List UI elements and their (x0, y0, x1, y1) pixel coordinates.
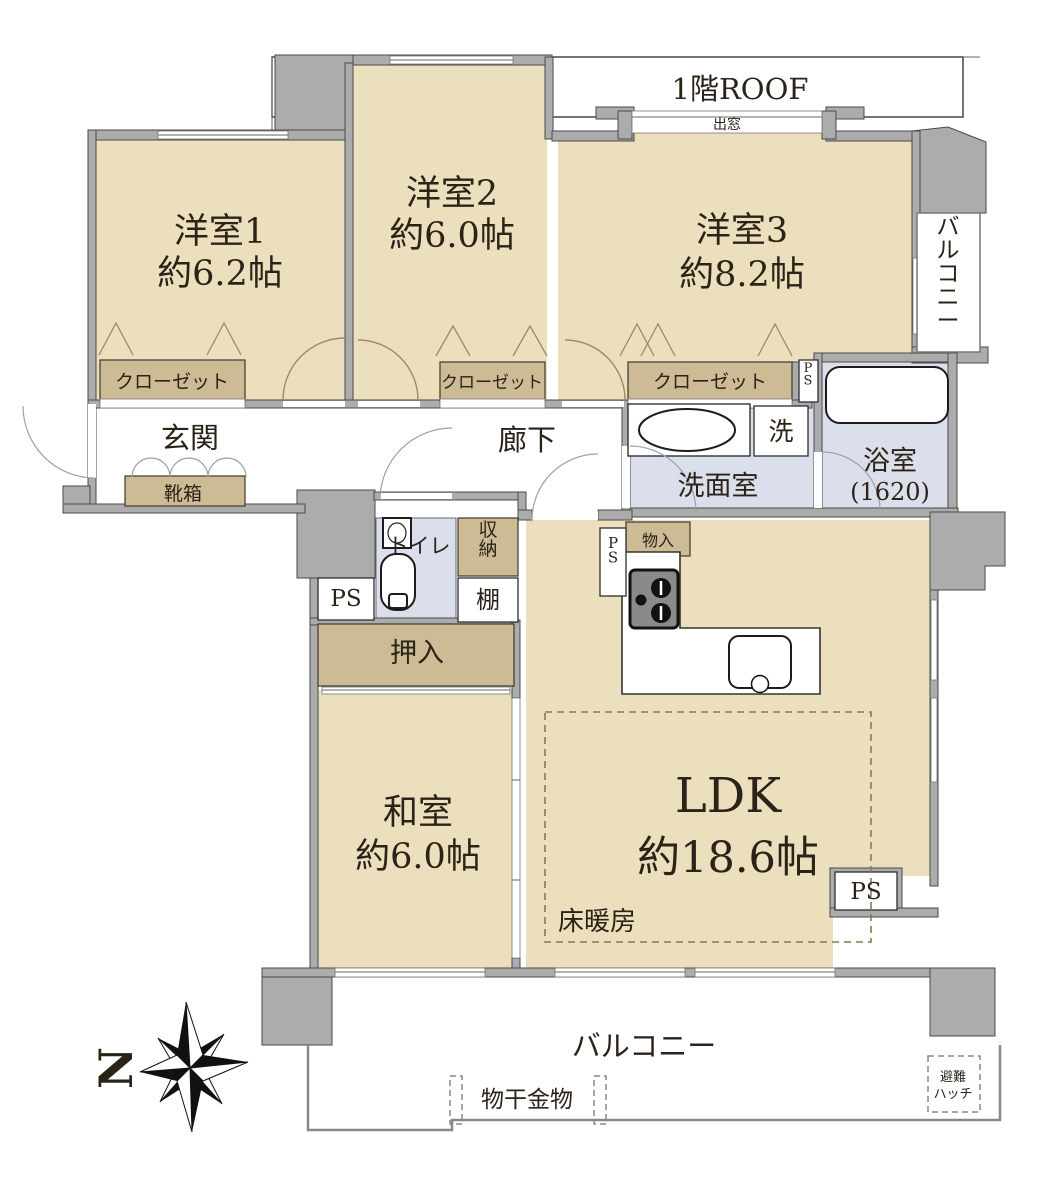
faucet (752, 676, 769, 693)
floor-heating-label: 床暖房 (558, 907, 636, 937)
bedroom3-name: 洋室3 (696, 211, 788, 251)
entrance-label: 玄関 (161, 421, 219, 455)
shoe-cabinet-door (170, 458, 208, 477)
balcony-bottom-label: バルコニー (572, 1029, 716, 1063)
toilet-label: トイレ (388, 534, 451, 558)
cubby-label: 物入 (642, 531, 674, 550)
entrance-opening (88, 404, 96, 478)
shelf-label: 棚 (476, 586, 500, 614)
shoe-cabinet-door (208, 458, 246, 477)
closet3-label: クローゼット (653, 371, 767, 393)
bathtub (826, 367, 948, 423)
laundry-fitting-mark (594, 1076, 606, 1124)
toilet-door (380, 428, 452, 500)
ps2-label: PS (330, 586, 361, 612)
bedroom2-name: 洋室2 (406, 174, 498, 214)
sliding-door (512, 698, 520, 958)
washer-label: 洗 (768, 417, 793, 446)
laundry-fitting-label: 物干金物 (481, 1087, 573, 1113)
bedroom1-name: 洋室1 (174, 212, 266, 252)
roof-label: 1階ROOF (672, 72, 809, 106)
japanese-room-size: 約6.0帖 (355, 837, 481, 877)
compass: N (89, 1002, 248, 1132)
north-label: N (89, 1047, 143, 1089)
bathroom-label: 浴室 (863, 446, 917, 477)
entrance-door (23, 406, 95, 478)
futon-closet-label: 押入 (390, 638, 444, 669)
window (931, 600, 937, 680)
washroom-label: 洗面室 (678, 471, 759, 502)
balcony-pillar-left (262, 977, 332, 1045)
storage-label: 収納 (478, 519, 497, 560)
bay-window-label: 出窓 (713, 116, 741, 133)
ldk-size: 約18.6帖 (637, 833, 819, 883)
hallway-label: 廊下 (498, 423, 556, 457)
hatch-label-1: 避難 (940, 1070, 966, 1085)
shoe-cabinet-label: 靴箱 (164, 483, 202, 505)
ldk-door (532, 454, 598, 520)
ps1-label: PS (804, 361, 813, 388)
floorplan-canvas: 1階ROOF 出窓 洋室1 約6.2帖 洋室2 約6.0帖 洋室3 約8.2帖 … (0, 0, 1053, 1200)
closet1-label: クローゼット (115, 371, 229, 393)
wash-basin (639, 409, 735, 451)
hatch-label-2: ハッチ (933, 1087, 972, 1102)
japanese-room-name: 和室 (383, 793, 453, 833)
balcony-right-label: バルコニー (937, 214, 960, 334)
floorplan-svg: 1階ROOF 出窓 洋室1 約6.2帖 洋室2 約6.0帖 洋室3 約8.2帖 … (0, 0, 1053, 1200)
ps4-label: PS (850, 879, 881, 905)
window (931, 698, 937, 782)
laundry-fitting-mark (450, 1076, 462, 1124)
bedroom2-size: 約6.0帖 (389, 216, 515, 256)
ps3-label: PS (608, 534, 618, 566)
balcony-pillar-right (930, 968, 995, 1036)
bedroom1-size: 約6.2帖 (157, 254, 283, 294)
closet2-label: クローゼット (441, 373, 543, 393)
bathroom-size-label: (1620) (850, 478, 930, 506)
shoe-cabinet-door (132, 458, 170, 477)
bedroom3-size: 約8.2帖 (679, 255, 805, 295)
ldk-name: LDK (675, 768, 782, 824)
